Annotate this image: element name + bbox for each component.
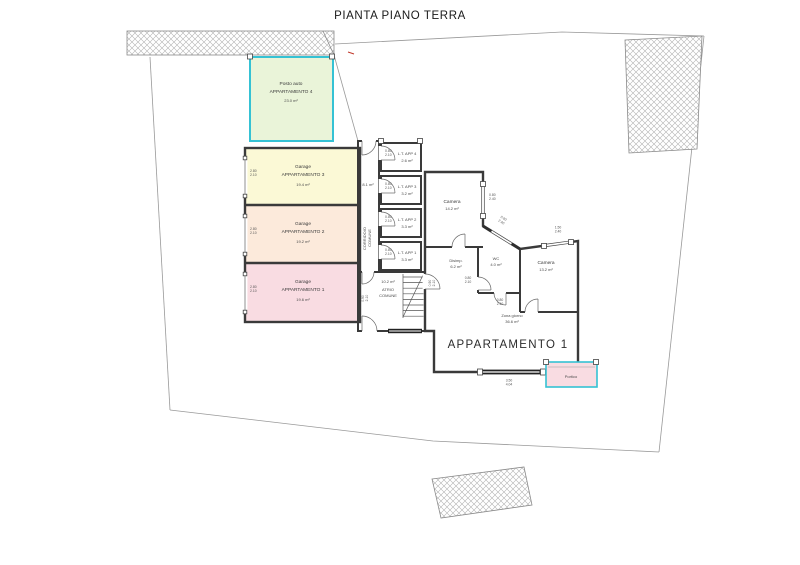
parking-area: 23.0 m² <box>284 98 298 103</box>
pillar <box>594 360 599 365</box>
lt-app2-door-dim: 0.802.10 <box>385 215 392 223</box>
parking-space-apt4: Posto auto APPARTAMENTO 4 23.0 m² <box>248 54 335 141</box>
camera2-name: Camera <box>537 260 554 266</box>
parking-apt-label: APPARTAMENTO 4 <box>270 89 313 95</box>
disimp-area: 6.2 m² <box>450 264 462 269</box>
lt-app4-label: L.T. APP 4 <box>398 151 417 156</box>
door-camera2-dim: 0.802.10 <box>497 298 504 306</box>
window-zona-giorno <box>478 369 546 375</box>
atrium-label-1: ATRIO <box>382 287 394 292</box>
garage1-apt-label: APPARTAMENTO 1 <box>282 287 325 293</box>
apartment-1: 0.802.40 0.902.40 1.502.40 <box>423 172 578 387</box>
garage2-apt-label: APPARTAMENTO 2 <box>282 229 325 235</box>
window-zona-dim: 3.504.04 <box>506 379 513 387</box>
window-camera1 <box>481 182 486 219</box>
portico-name: Portico <box>565 374 578 379</box>
garage3-apt-label: APPARTAMENTO 3 <box>282 172 325 178</box>
lt-app3-area: 3.2 m² <box>401 191 413 196</box>
wc-name: WC <box>493 256 500 261</box>
garage1-door-dim: 2.80 2.10 <box>250 285 258 293</box>
garage2-name: Garage <box>295 221 311 227</box>
corridor-door-dim: 0.90 2.10 <box>361 294 369 302</box>
stairs <box>403 274 424 318</box>
hatch-area-bottom <box>432 467 532 518</box>
garage1-name: Garage <box>295 279 311 285</box>
storage-rooms: L.T. APP 4 2.6 m² 0.802.10 L.T. APP 3 3.… <box>379 139 423 271</box>
window-camera1-dim: 0.802.40 <box>489 193 496 201</box>
zona-giorno-name: Zona giorno <box>501 313 523 318</box>
camera1-name: Camera <box>443 199 460 205</box>
atrium-entry-door <box>362 316 377 333</box>
hatch-area-top-right <box>625 36 702 153</box>
atrium-area: 10.2 m² <box>381 279 395 284</box>
atrium-label-2: COMUNE <box>379 293 397 298</box>
floor-plan-svg: PIANTA PIANO TERRA Posto auto APPARTAMEN… <box>0 0 800 565</box>
door-entrance-dim: 0.902.10 <box>428 280 436 287</box>
disimp-name: Disimp. <box>449 258 462 263</box>
lt-app1-label: L.T. APP 1 <box>398 250 417 255</box>
camera2-area: 13.2 m² <box>539 267 553 272</box>
garage1-area: 19.6 m² <box>296 297 310 302</box>
pillar <box>379 139 384 144</box>
apartment1-label: APPARTAMENTO 1 <box>448 339 569 351</box>
pillar <box>418 139 423 144</box>
garage3-door-dim: 2.80 2.10 <box>250 169 258 177</box>
window-diagonal <box>483 226 520 249</box>
corridor-label: CORRIDOIO COMUNE <box>362 226 372 250</box>
zona-giorno-area: 36.6 m² <box>505 319 519 324</box>
atrium-window <box>388 329 422 333</box>
pillar <box>330 54 335 59</box>
garage2-door-dim: 2.80 2.10 <box>250 227 258 235</box>
pillar <box>248 54 253 59</box>
garage-apt3-door <box>243 156 247 198</box>
lt-app3-door-dim: 0.802.10 <box>385 182 392 190</box>
garage-apt2-door <box>243 214 247 256</box>
window-camera2-dim: 1.502.40 <box>555 226 562 234</box>
garage3-name: Garage <box>295 164 311 170</box>
parking-name: Posto auto <box>280 81 303 87</box>
hatch-band-top-left <box>127 31 334 55</box>
wc-area: 4.0 m² <box>490 262 502 267</box>
lt-app2-label: L.T. APP 2 <box>398 217 417 222</box>
lt-app1-door-dim: 0.802.10 <box>385 248 392 256</box>
lt-app3-label: L.T. APP 3 <box>398 184 417 189</box>
floor-plan-page: PIANTA PIANO TERRA Posto auto APPARTAMEN… <box>0 0 800 565</box>
corridor-area: 8.1 m² <box>362 182 374 187</box>
door-wc-dim: 0.802.10 <box>465 276 472 284</box>
garage-apt1-door <box>243 272 247 314</box>
lt-app4-area: 2.6 m² <box>401 158 413 163</box>
atrium-corridor-door <box>362 270 374 284</box>
site-boundary <box>150 32 704 452</box>
door-camera1 <box>452 234 465 249</box>
garage-block: Garage APPARTAMENTO 3 19.4 m² 2.80 2.10 … <box>243 148 360 322</box>
pillar <box>544 360 549 365</box>
window-camera2 <box>542 240 574 249</box>
lt-app2-area: 3.3 m² <box>401 224 413 229</box>
door-camera2 <box>525 299 538 314</box>
lt-app4-door-dim: 0.802.10 <box>385 149 392 157</box>
camera1-area: 14.2 m² <box>445 206 459 211</box>
red-marker <box>348 52 354 54</box>
corridor-entry-door <box>362 139 376 155</box>
garage2-area: 19.2 m² <box>296 239 310 244</box>
window-diagonal-dim: 0.902.40 <box>498 215 508 226</box>
page-title: PIANTA PIANO TERRA <box>334 10 466 22</box>
door-wc <box>476 277 491 290</box>
portico: Portico <box>544 360 599 388</box>
lt-app1-area: 3.3 m² <box>401 257 413 262</box>
garage3-area: 19.4 m² <box>296 182 310 187</box>
